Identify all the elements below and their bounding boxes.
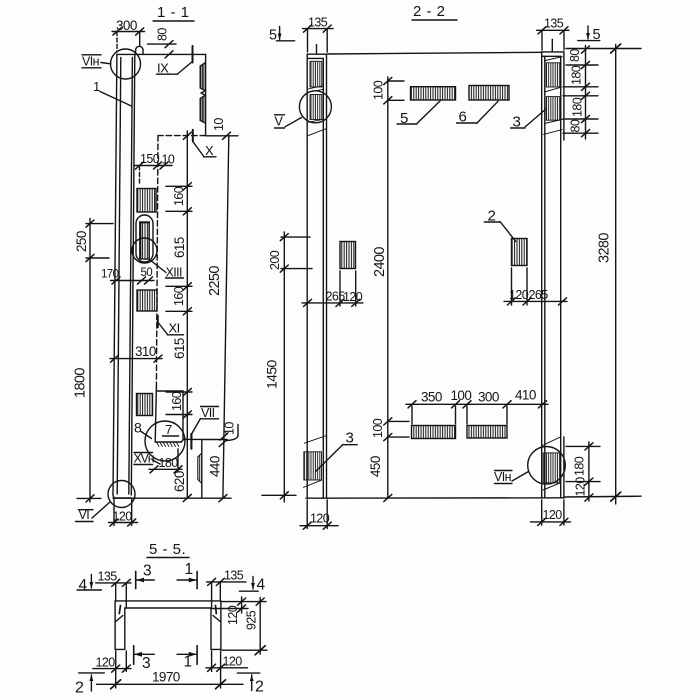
svg-text:100: 100	[371, 418, 385, 438]
svg-text:180: 180	[573, 456, 587, 476]
svg-text:310: 310	[135, 344, 156, 359]
svg-text:4: 4	[79, 577, 88, 594]
svg-text:135: 135	[544, 17, 564, 31]
svg-text:100: 100	[451, 388, 472, 403]
svg-text:3: 3	[143, 563, 151, 580]
svg-text:2 - 2: 2 - 2	[413, 3, 446, 20]
svg-text:620: 620	[172, 471, 187, 492]
svg-text:180: 180	[159, 456, 179, 470]
svg-text:925: 925	[244, 610, 258, 630]
svg-text:80: 80	[569, 119, 583, 132]
svg-text:2250: 2250	[207, 266, 223, 296]
svg-text:440: 440	[208, 456, 223, 477]
svg-text:3: 3	[346, 430, 354, 447]
svg-text:X: X	[205, 143, 214, 158]
svg-text:IX: IX	[157, 61, 169, 76]
svg-text:VIн: VIн	[494, 470, 512, 484]
svg-text:2400: 2400	[372, 247, 388, 277]
svg-text:120: 120	[96, 656, 116, 670]
svg-text:XVн: XVн	[134, 452, 155, 466]
svg-text:615: 615	[172, 237, 187, 258]
svg-text:2: 2	[75, 680, 84, 697]
svg-text:200: 200	[268, 250, 282, 270]
svg-text:150: 150	[140, 152, 160, 166]
svg-text:160: 160	[170, 391, 184, 411]
svg-text:3280: 3280	[597, 233, 613, 263]
svg-text:450: 450	[368, 456, 383, 477]
svg-text:8: 8	[134, 420, 142, 436]
svg-text:120: 120	[509, 288, 529, 302]
svg-text:1 - 1: 1 - 1	[157, 4, 190, 21]
svg-text:120: 120	[226, 605, 240, 625]
svg-text:300: 300	[116, 18, 137, 33]
svg-text:615: 615	[172, 338, 187, 359]
svg-text:2: 2	[255, 679, 264, 696]
svg-text:80: 80	[568, 49, 582, 62]
svg-text:VIн: VIн	[82, 55, 100, 69]
svg-text:1: 1	[184, 654, 192, 671]
svg-text:5 - 5.: 5 - 5.	[149, 541, 186, 558]
svg-text:120: 120	[343, 290, 363, 304]
svg-text:265: 265	[529, 288, 549, 302]
svg-text:10: 10	[212, 118, 226, 131]
svg-text:3: 3	[142, 655, 150, 672]
svg-text:160: 160	[172, 186, 186, 206]
svg-text:300: 300	[478, 390, 499, 405]
svg-text:1970: 1970	[152, 670, 180, 685]
svg-text:135: 135	[98, 570, 118, 584]
svg-text:120: 120	[113, 510, 133, 524]
svg-text:100: 100	[372, 80, 386, 100]
svg-text:1450: 1450	[264, 359, 280, 389]
svg-text:120: 120	[310, 512, 330, 526]
svg-text:10: 10	[223, 422, 237, 435]
svg-text:135: 135	[224, 569, 244, 583]
svg-text:V: V	[275, 115, 284, 129]
svg-text:350: 350	[421, 390, 442, 405]
svg-text:VII: VII	[201, 406, 215, 420]
svg-text:160: 160	[172, 286, 186, 306]
svg-text:7: 7	[165, 422, 172, 437]
svg-text:80: 80	[156, 28, 170, 41]
svg-text:50: 50	[141, 267, 153, 279]
svg-text:410: 410	[515, 388, 536, 403]
svg-text:170: 170	[101, 269, 119, 281]
svg-text:1: 1	[185, 561, 193, 578]
svg-text:135: 135	[308, 16, 328, 30]
svg-text:180: 180	[571, 97, 585, 117]
svg-text:120: 120	[223, 655, 243, 669]
svg-text:10: 10	[162, 153, 175, 167]
svg-text:120: 120	[543, 508, 563, 522]
svg-text:1: 1	[93, 79, 100, 94]
svg-text:180: 180	[570, 65, 584, 85]
svg-text:120: 120	[574, 477, 588, 497]
svg-text:1800: 1800	[73, 368, 89, 398]
svg-text:250: 250	[74, 231, 89, 252]
svg-text:XI: XI	[169, 321, 180, 336]
